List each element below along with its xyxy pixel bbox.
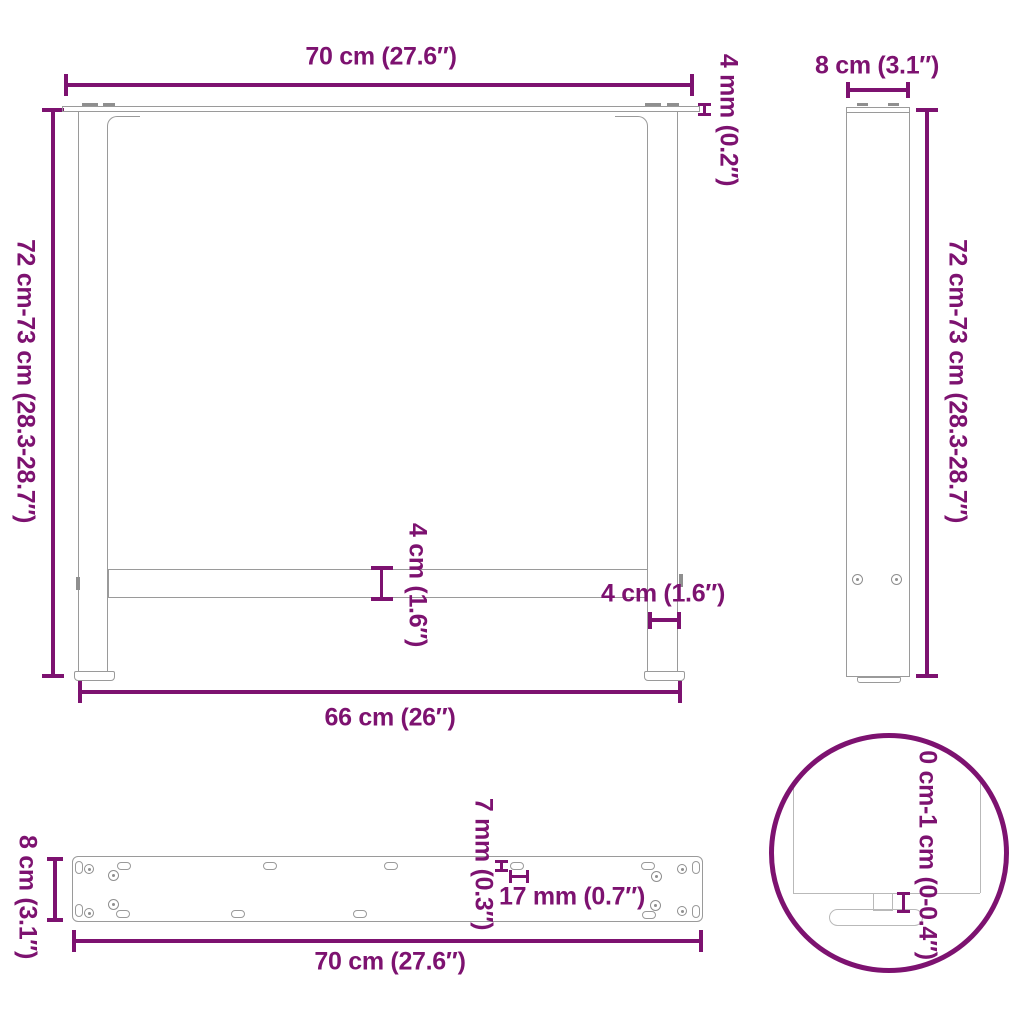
dimension-diagram: 70 cm (27.6″) 72 cm-73 cm (28.3-28.7″) 4… (0, 0, 1024, 1024)
front-bottom-width-dim-line (78, 690, 682, 694)
plate-screw (84, 864, 94, 874)
leg-width-mark (649, 618, 680, 622)
hole-diameter-label: 7 mm (0.3″) (469, 798, 498, 930)
plate-screw (108, 899, 119, 910)
front-plate-thickness-mark (703, 104, 706, 115)
side-depth-dim-line (846, 88, 910, 92)
plate-slot (510, 862, 524, 870)
side-height-dim-line (925, 108, 929, 678)
plate-slot (641, 862, 655, 870)
side-top-plate-edge (846, 112, 910, 113)
front-top-width-dim-line (64, 83, 694, 87)
plate-slot (117, 862, 131, 870)
side-plate-slot-edge (888, 103, 899, 106)
plate-end-slot (75, 904, 83, 917)
plate-screw (651, 871, 662, 882)
side-plate-slot-edge (857, 103, 868, 106)
plate-slot (263, 862, 277, 870)
side-leg-body (846, 107, 910, 677)
plate-end-slot (692, 861, 700, 874)
side-depth-label: 8 cm (3.1″) (815, 52, 939, 81)
slot-length-mark (510, 875, 528, 878)
plate-screw (677, 906, 687, 916)
front-bottom-width-label: 66 cm (26″) (325, 704, 456, 733)
side-screw (852, 574, 863, 585)
front-plate-slot-edge (667, 103, 679, 106)
plate-slot (384, 862, 398, 870)
plate-slot (353, 910, 367, 918)
front-plate-slot-edge (82, 103, 98, 106)
plate-screw (677, 864, 687, 874)
side-foot (857, 677, 901, 683)
front-height-dim-line (51, 108, 55, 678)
slot-length-label: 17 mm (0.7″) (499, 883, 645, 912)
front-top-plate (62, 106, 700, 112)
right-leg-gusset (615, 116, 648, 129)
side-height-label: 72 cm-73 cm (28.3-28.7″) (943, 239, 972, 523)
left-leg-side-screw (76, 577, 80, 590)
front-height-label: 72 cm-73 cm (28.3-28.7″) (11, 239, 40, 523)
plate-screw (650, 900, 661, 911)
crossbar-width-label: 4 cm (1.6″) (403, 523, 432, 647)
front-plate-slot-edge (103, 103, 115, 106)
foot-adjust-mark (902, 893, 905, 912)
detail-circle (769, 733, 1009, 973)
crossbar-width-mark (380, 567, 383, 600)
plate-depth-dim-line (53, 857, 57, 922)
left-leg-gusset (107, 116, 140, 129)
right-foot (644, 671, 685, 681)
plate-end-slot (692, 905, 700, 918)
plate-screw (108, 870, 119, 881)
front-top-width-label: 70 cm (27.6″) (305, 43, 456, 72)
plate-slot (116, 910, 130, 918)
front-plate-slot-edge (645, 103, 661, 106)
front-plate-thickness-label: 4 mm (0.2″) (714, 54, 743, 186)
left-foot (74, 671, 115, 681)
plate-end-slot (75, 861, 83, 874)
plate-depth-label: 8 cm (3.1″) (13, 835, 42, 959)
side-screw (891, 574, 902, 585)
leg-width-label: 4 cm (1.6″) (601, 580, 725, 609)
slot-height-mark (500, 861, 503, 871)
plate-width-dim-line (72, 939, 703, 943)
plate-width-label: 70 cm (27.6″) (314, 948, 465, 977)
foot-adjustment-label: 0 cm-1 cm (0-0.4″) (913, 750, 942, 959)
plate-screw (84, 908, 94, 918)
crossbar (108, 569, 648, 598)
plate-slot (642, 911, 656, 919)
plate-slot (231, 910, 245, 918)
